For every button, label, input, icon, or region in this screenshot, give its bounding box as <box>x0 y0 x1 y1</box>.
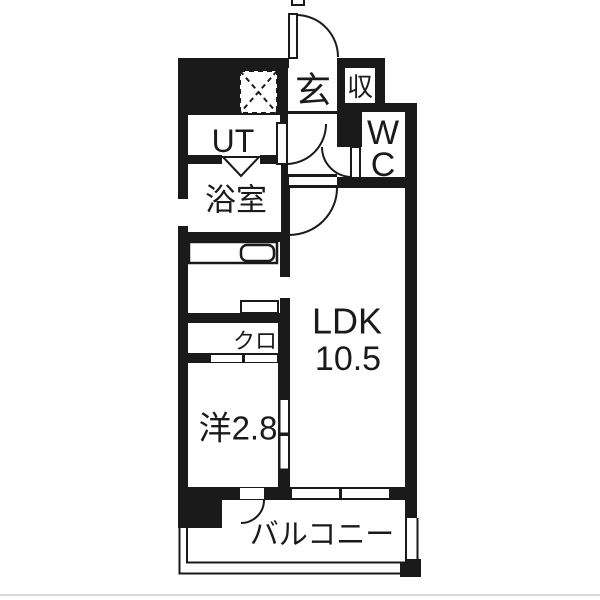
room-sliding-panel-1 <box>280 399 289 433</box>
floor-plan-svg: 玄 収 UT W C 浴室 クロ LDK 10.5 洋2.8 バルコニー <box>0 0 600 600</box>
entrance-door-leaf <box>289 14 297 58</box>
floor-plan-canvas: 玄 収 UT W C 浴室 クロ LDK 10.5 洋2.8 バルコニー <box>0 0 600 600</box>
ldk-door-line-bottom <box>288 185 337 188</box>
storage-label: 収 <box>347 72 373 102</box>
room-sliding-panel-2 <box>280 435 289 469</box>
ldk-size-label: 10.5 <box>315 340 381 378</box>
ldk-door-line-top <box>288 174 337 177</box>
western-balcony-door-opening <box>240 488 264 499</box>
wc-door-leaf <box>351 147 360 178</box>
bottom-left-block <box>178 487 222 528</box>
bathroom-window <box>178 199 188 226</box>
kitchen-sink <box>241 245 274 261</box>
toilet-label-c: C <box>371 146 396 184</box>
top-edge-mark <box>292 0 304 5</box>
entrance-step-line <box>288 111 337 114</box>
utility-door-leaf <box>277 123 287 164</box>
closet-label: クロ <box>233 329 277 354</box>
utility-label: UT <box>212 123 255 159</box>
balcony-label: バルコニー <box>250 519 394 551</box>
entrance-label: 玄 <box>295 70 331 111</box>
bathroom-label: 浴室 <box>205 183 267 218</box>
closet-sliding-panel-1 <box>211 355 242 362</box>
ldk-label: LDK <box>312 301 382 342</box>
closet-shelf <box>241 301 278 313</box>
page-baseline <box>0 594 600 596</box>
ldk-door-opening <box>289 177 337 185</box>
entrance-door-arc <box>297 15 338 57</box>
ldk-window-1 <box>292 489 339 498</box>
ldk-window-2 <box>342 489 389 498</box>
closet-sliding-panel-2 <box>245 355 277 362</box>
entrance-door-opening <box>289 58 337 68</box>
western-room-label: 洋2.8 <box>199 410 278 447</box>
